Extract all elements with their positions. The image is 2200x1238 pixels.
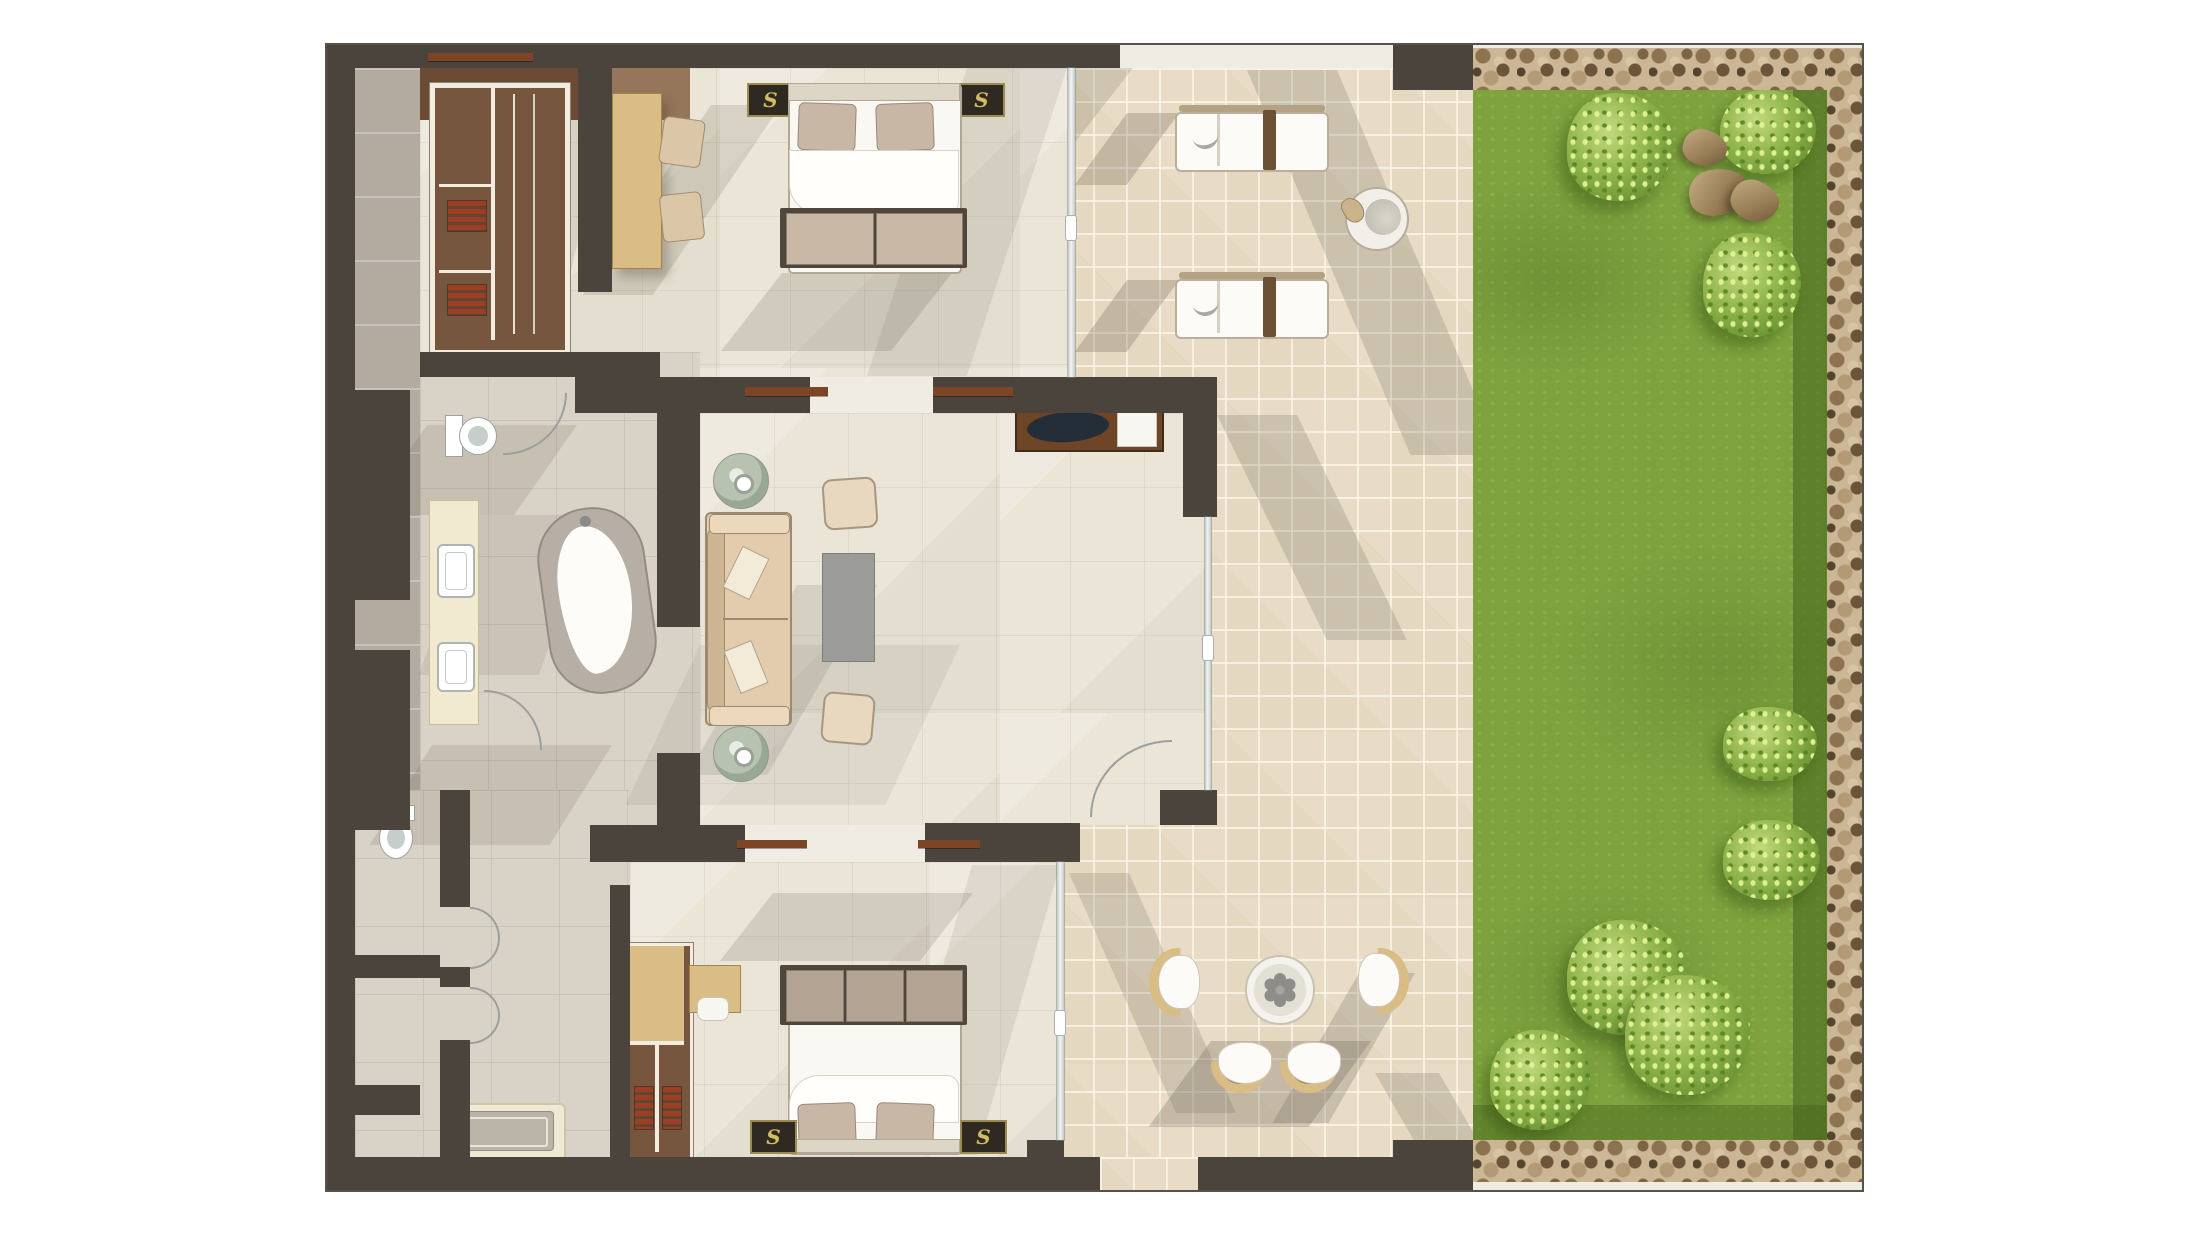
coffee-table [822, 553, 875, 662]
nightstand-icon: S [960, 1120, 1007, 1154]
lounger-rail [1179, 105, 1325, 112]
wall-bathroom2-upper [440, 790, 470, 907]
door-lintel [933, 387, 1013, 396]
dining-chair [1211, 1035, 1269, 1093]
sofa-armrest [709, 514, 790, 534]
floor-plan-image: S S [0, 0, 2200, 1238]
wall-tv-nook [1183, 377, 1217, 517]
sun-lounger [1175, 272, 1330, 338]
desk-chair [697, 997, 729, 1021]
monogram: S [763, 90, 777, 110]
monogram: S [976, 1127, 990, 1147]
bed-bench [780, 208, 967, 268]
lounger-bar [1263, 277, 1276, 337]
throw-pillow [722, 546, 769, 600]
dining-chair [1280, 1035, 1338, 1093]
wall-bedroom1-wc [420, 352, 660, 377]
folded-clothes-icon [447, 200, 487, 232]
dining-table [1245, 955, 1315, 1025]
bench-cushion [906, 970, 963, 1022]
shelf [439, 270, 491, 273]
outer-wall-left [327, 45, 355, 1190]
lounger-bar [1263, 110, 1276, 170]
wall-bathroom2-mid [440, 967, 470, 987]
chair-seat [1358, 953, 1400, 1007]
nightstand-icon: S [958, 83, 1005, 117]
sun-lounger [1175, 105, 1330, 171]
lounger-rail [1179, 272, 1325, 279]
door-handle [1202, 635, 1214, 661]
floor-plan: S S [327, 45, 1862, 1190]
outer-wall-bottom [327, 1157, 1100, 1190]
potted-plant-icon [713, 726, 769, 782]
potted-plant-icon [713, 453, 769, 509]
door-lintel [737, 840, 807, 848]
patio-wall-bottom [1198, 1157, 1393, 1190]
shelf [439, 184, 491, 187]
desk-chair [658, 115, 706, 168]
door-lintel [918, 840, 980, 848]
hanging-rod [513, 94, 515, 334]
pilaster [337, 390, 410, 600]
wardrobe-top [630, 946, 684, 1041]
bench-cushion [786, 213, 874, 265]
ottoman-pouf [821, 476, 878, 531]
chair-seat [1287, 1042, 1341, 1084]
window-wall-bedroom2 [1057, 862, 1064, 1140]
cushion-seam [723, 618, 788, 620]
wall-living-se [1160, 790, 1217, 825]
duvet [789, 150, 959, 214]
window-handle [1054, 1010, 1066, 1036]
wardrobe-bedroom1 [430, 83, 570, 355]
wall-bedroom2-divider [610, 885, 630, 1157]
tray-rim [468, 1117, 548, 1147]
monogram: S [766, 1127, 780, 1147]
chair-seat [1218, 1042, 1272, 1084]
bed-bench [780, 965, 967, 1025]
nightstand-icon: S [747, 83, 794, 117]
pilaster [355, 1085, 420, 1115]
folded-clothes-icon [634, 1086, 654, 1130]
media-box [1117, 409, 1157, 447]
wall-bathroom2-lower [440, 1040, 470, 1157]
throw-pillow [723, 640, 768, 694]
sink [437, 544, 475, 598]
chair-seat [1158, 955, 1200, 1009]
hanging-rod [533, 94, 535, 334]
patio-side-table [1345, 187, 1409, 251]
wall-bathroom2-horizontal [355, 955, 440, 978]
folded-clothes-icon [447, 284, 487, 316]
wardrobe-bedroom2 [627, 943, 693, 1161]
toilet-wc [459, 417, 497, 455]
pillow [797, 102, 857, 152]
bathtub-basin [550, 521, 642, 678]
pilaster [337, 650, 410, 830]
headboard [788, 1139, 960, 1153]
headboard [788, 83, 960, 101]
sofa-back [707, 528, 725, 712]
sofa [705, 512, 792, 726]
wardrobe-divider [491, 88, 495, 340]
folded-clothes-icon [662, 1086, 682, 1130]
cast-shadow [720, 893, 973, 961]
ottoman-pouf [820, 691, 876, 746]
bench-cushion [846, 970, 904, 1022]
wall-hall-living-upper [657, 413, 700, 627]
window-handle [1065, 215, 1077, 241]
tv-icon [1026, 409, 1110, 445]
table-center-icon [1260, 970, 1300, 1010]
dining-chair [1351, 948, 1409, 1014]
patio-pillar-top [1393, 45, 1473, 90]
patio-pillar-bottom [1393, 1140, 1473, 1190]
wall-step-bed2 [1027, 1140, 1064, 1157]
pillow [875, 102, 935, 152]
sofa-armrest [709, 706, 790, 726]
wall-living-bedroom2-left [590, 825, 745, 862]
bench-cushion [786, 970, 844, 1022]
dining-chair [1149, 948, 1207, 1016]
wardrobe-divider [655, 1045, 659, 1152]
wall-closet-stub [578, 68, 612, 292]
vanity-two-sinks [429, 500, 479, 725]
monogram: S [974, 90, 988, 110]
door-lintel [428, 53, 533, 61]
desk-bedroom1 [612, 93, 662, 269]
door-lintel [745, 387, 828, 396]
bench-cushion [876, 213, 963, 265]
nightstand-icon: S [750, 1120, 797, 1154]
sink [437, 642, 475, 692]
desk-chair [659, 191, 706, 243]
